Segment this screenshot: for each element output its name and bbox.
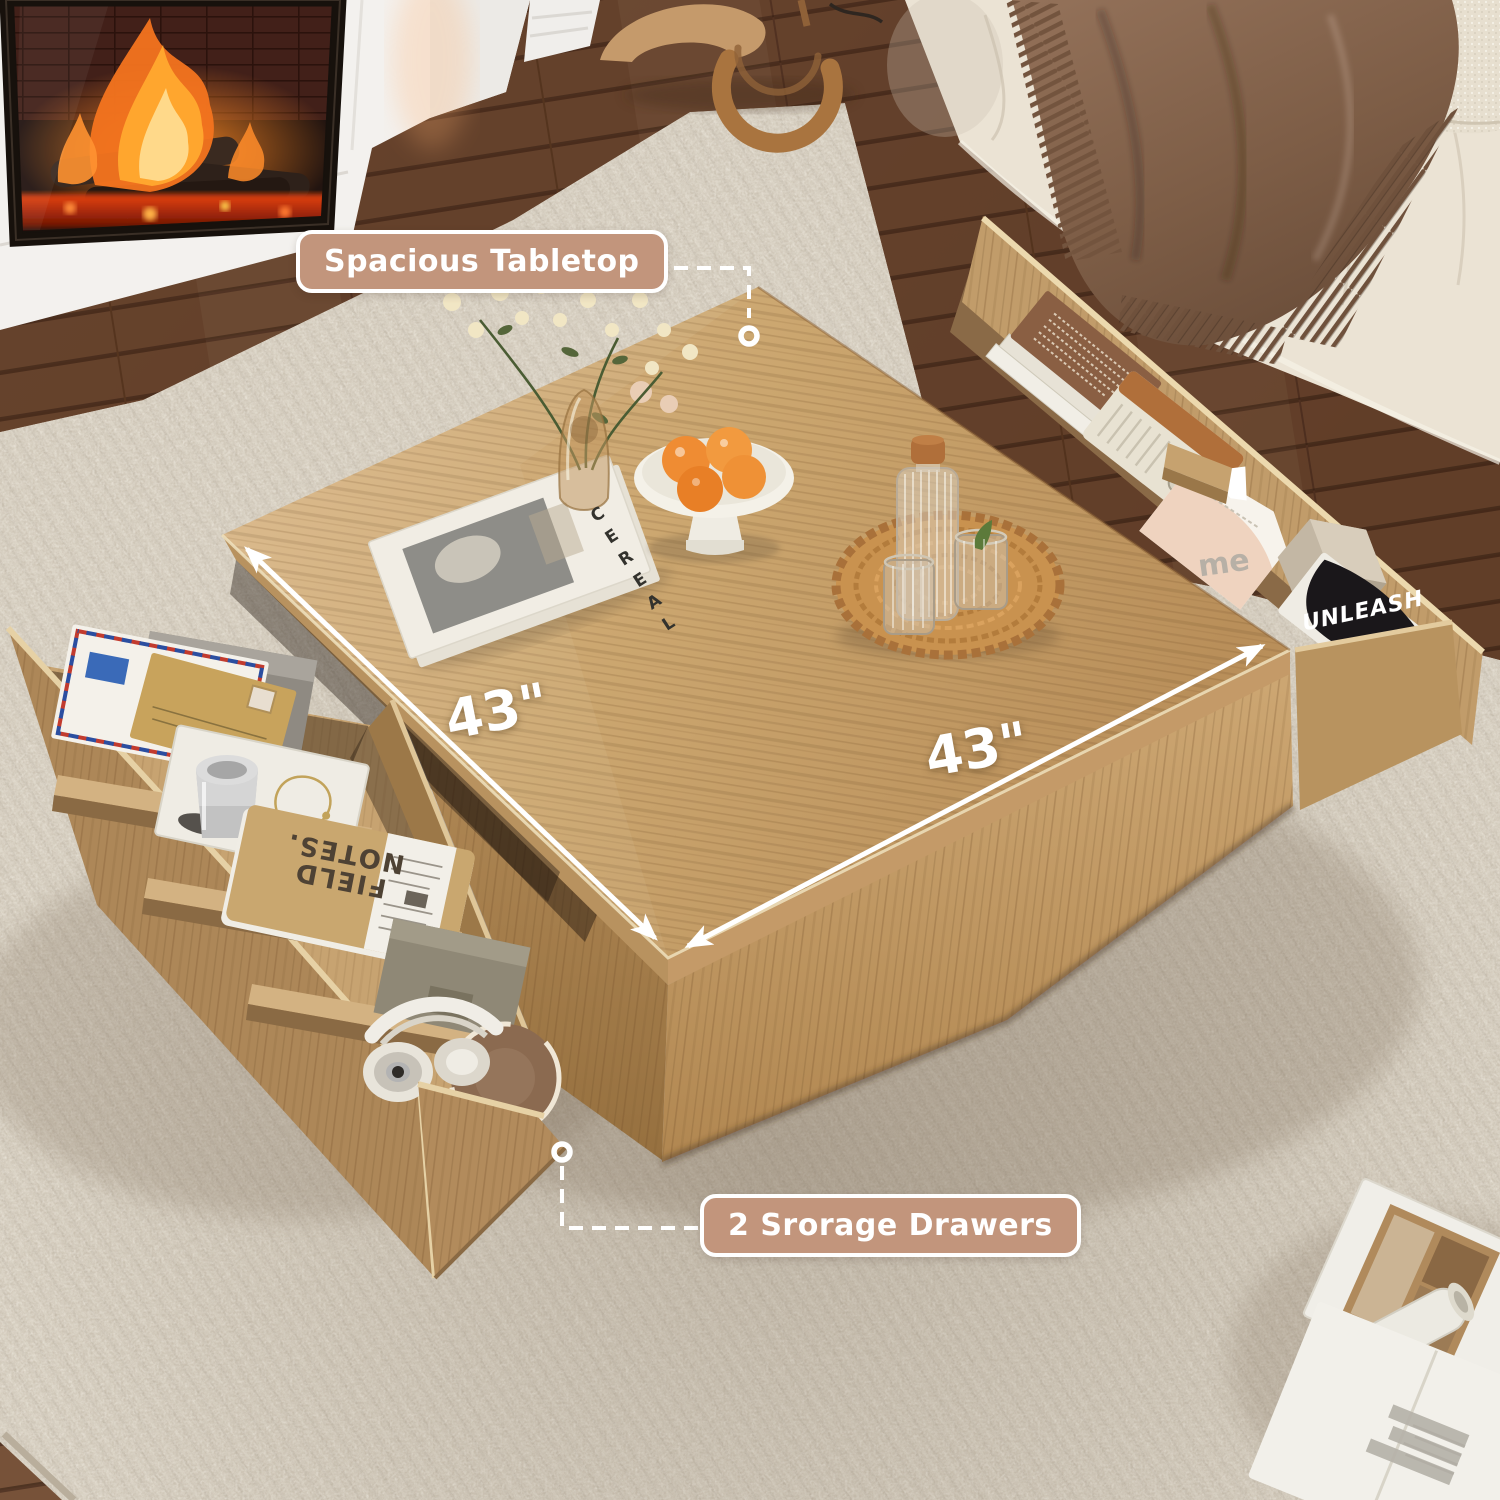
tissue-box-text: me (1196, 543, 1252, 585)
drawers-label-text: 2 Srorage Drawers (728, 1208, 1053, 1243)
scene-canvas (0, 0, 1500, 1500)
drawers-label: 2 Srorage Drawers (700, 1194, 1081, 1257)
firebox (0, 0, 350, 240)
tabletop-label-text: Spacious Tabletop (324, 244, 640, 279)
product-photo-scene: Spacious Tabletop 2 Srorage Drawers 43" … (0, 0, 1500, 1500)
tabletop-label: Spacious Tabletop (296, 230, 668, 293)
